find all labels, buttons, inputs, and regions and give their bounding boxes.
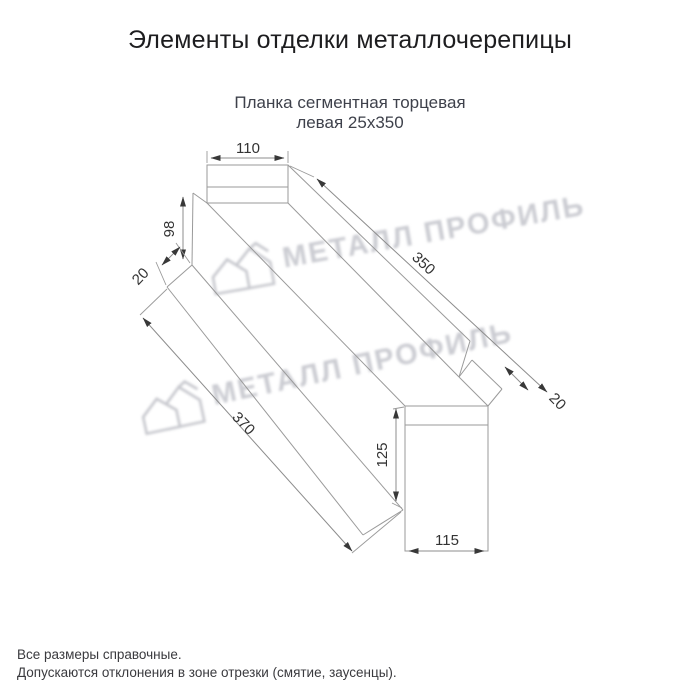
dim-110-label: 110	[236, 140, 260, 157]
dim-110: 110	[207, 140, 288, 163]
dim-370-label: 370	[229, 409, 259, 439]
dim-115: 115	[409, 532, 484, 551]
dim-370: 370	[140, 289, 401, 553]
dim-20-left: 20	[129, 243, 190, 289]
left-end-flange-face	[207, 165, 288, 203]
dim-115-label: 115	[435, 532, 459, 549]
dim-125-label: 125	[374, 442, 391, 467]
plank-long-edges	[167, 165, 470, 535]
dim-125: 125	[374, 407, 404, 508]
footer-notes: Все размеры справочные. Допускаются откл…	[17, 646, 397, 682]
dim-98: 98	[161, 197, 183, 259]
footer-note-1: Все размеры справочные.	[17, 646, 397, 664]
footer-note-2: Допускаются отклонения в зоне отрезки (с…	[17, 664, 397, 682]
dim-350-label: 350	[408, 249, 438, 279]
dim-350: 350	[290, 166, 547, 392]
dim-98-label: 98	[161, 221, 178, 238]
left-end-edges	[167, 193, 207, 287]
right-end-cut-hem	[459, 341, 502, 406]
drawing-page: МЕТАЛЛ ПРОФИЛЬ МЕТАЛЛ ПРОФИЛЬ Элементы о…	[0, 0, 700, 700]
technical-drawing: 110 98 20 350 370 20	[0, 0, 700, 700]
dim-20-left-label: 20	[129, 265, 153, 289]
right-end-face	[405, 406, 488, 551]
dim-20-right: 20	[505, 367, 569, 414]
dim-20-right-label: 20	[545, 390, 569, 414]
